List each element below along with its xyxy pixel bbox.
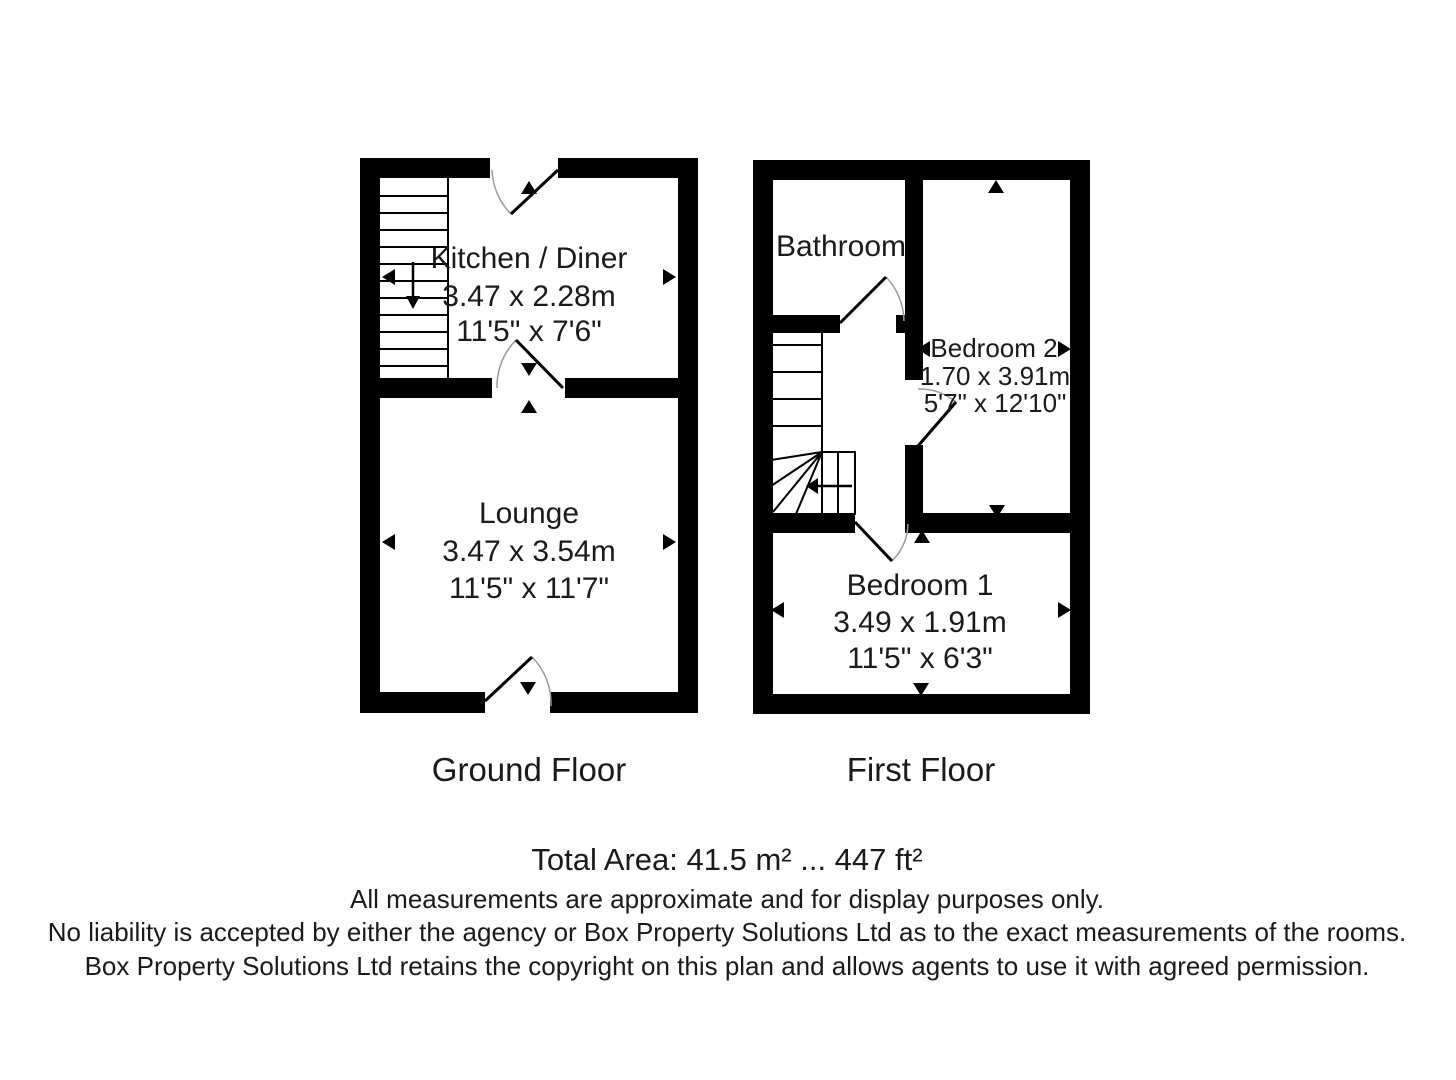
dimension-arrow-down-icon <box>520 682 536 695</box>
dimension-arrow-up-icon <box>521 181 537 194</box>
bedroom2-label: Bedroom 2 <box>930 333 1057 363</box>
dimension-arrow-left-icon <box>382 269 395 285</box>
wall-bathroom-jamb <box>896 315 907 333</box>
wall-bedroom1-top-left <box>753 513 855 533</box>
wall-divider-right-segment <box>565 378 698 398</box>
door-bathroom-icon <box>840 277 904 323</box>
wall-right <box>1070 160 1090 714</box>
bedroom1-imperial: 11'5" x 6'3" <box>847 642 993 675</box>
disclaimer-line-2: No liability is accepted by either the a… <box>48 917 1406 947</box>
bedroom1-metric: 3.49 x 1.91m <box>833 606 1006 639</box>
stair-down-arrow-icon <box>406 262 420 309</box>
wall-top-right-segment <box>558 158 698 178</box>
staircase-first-icon <box>771 333 855 514</box>
wall-right <box>678 158 698 713</box>
ground-floor-plan: Kitchen / Diner 3.47 x 2.28m 11'5" x 7'6… <box>360 158 698 788</box>
kitchen-diner-metric: 3.47 x 2.28m <box>442 280 615 313</box>
dimension-arrow-right-icon <box>1058 341 1071 357</box>
dimension-arrow-right-icon <box>663 534 676 550</box>
wall-left <box>360 158 380 713</box>
dimension-arrow-up-icon <box>988 180 1004 193</box>
lounge-label: Lounge <box>479 497 579 530</box>
wall-bottom-left-segment <box>360 692 485 713</box>
bedroom2-imperial: 5'7" x 12'10" <box>924 388 1067 418</box>
dimension-arrow-right-icon <box>663 269 676 285</box>
wall-bottom-right-segment <box>550 692 698 713</box>
bedroom1-label: Bedroom 1 <box>847 569 994 602</box>
bathroom-label: Bathroom <box>776 230 906 263</box>
footer-text: Total Area: 41.5 m² ... 447 ft² All meas… <box>48 842 1406 981</box>
wall-left <box>753 160 773 714</box>
ground-floor-title: Ground Floor <box>432 751 626 788</box>
disclaimer-line-3: Box Property Solutions Ltd retains the c… <box>85 951 1370 981</box>
wall-bedroom1-top-right <box>905 513 1070 533</box>
door-bedroom1-icon <box>855 522 908 561</box>
disclaimer-line-1: All measurements are approximate and for… <box>350 884 1104 914</box>
wall-bathroom-bottom <box>753 315 840 333</box>
floorplan-drawing: Kitchen / Diner 3.47 x 2.28m 11'5" x 7'6… <box>0 0 1456 1080</box>
total-area-text: Total Area: 41.5 m² ... 447 ft² <box>531 842 922 877</box>
stair-up-left-arrow-icon <box>806 478 852 494</box>
wall-divider-left-segment <box>360 378 492 398</box>
kitchen-diner-imperial: 11'5" x 7'6" <box>456 315 602 348</box>
lounge-imperial: 11'5" x 11'7" <box>449 572 609 605</box>
bedroom2-metric: 1.70 x 3.91m <box>920 361 1070 391</box>
dimension-arrow-up-icon <box>521 400 537 413</box>
dimension-arrow-right-icon <box>1058 602 1071 618</box>
dimension-arrow-down-icon <box>521 363 537 376</box>
lounge-metric: 3.47 x 3.54m <box>442 535 615 568</box>
kitchen-diner-label: Kitchen / Diner <box>431 242 628 275</box>
wall-top-left-segment <box>360 158 490 178</box>
first-floor-title: First Floor <box>847 751 996 788</box>
door-front-entrance-icon <box>485 657 551 706</box>
first-floor-plan: Bathroom Bedroom 2 1.70 x 3.91m 5'7" x 1… <box>753 160 1090 788</box>
wall-bottom <box>753 694 1090 714</box>
dimension-arrow-left-icon <box>382 534 395 550</box>
floorplan-canvas: Kitchen / Diner 3.47 x 2.28m 11'5" x 7'6… <box>0 0 1456 1080</box>
